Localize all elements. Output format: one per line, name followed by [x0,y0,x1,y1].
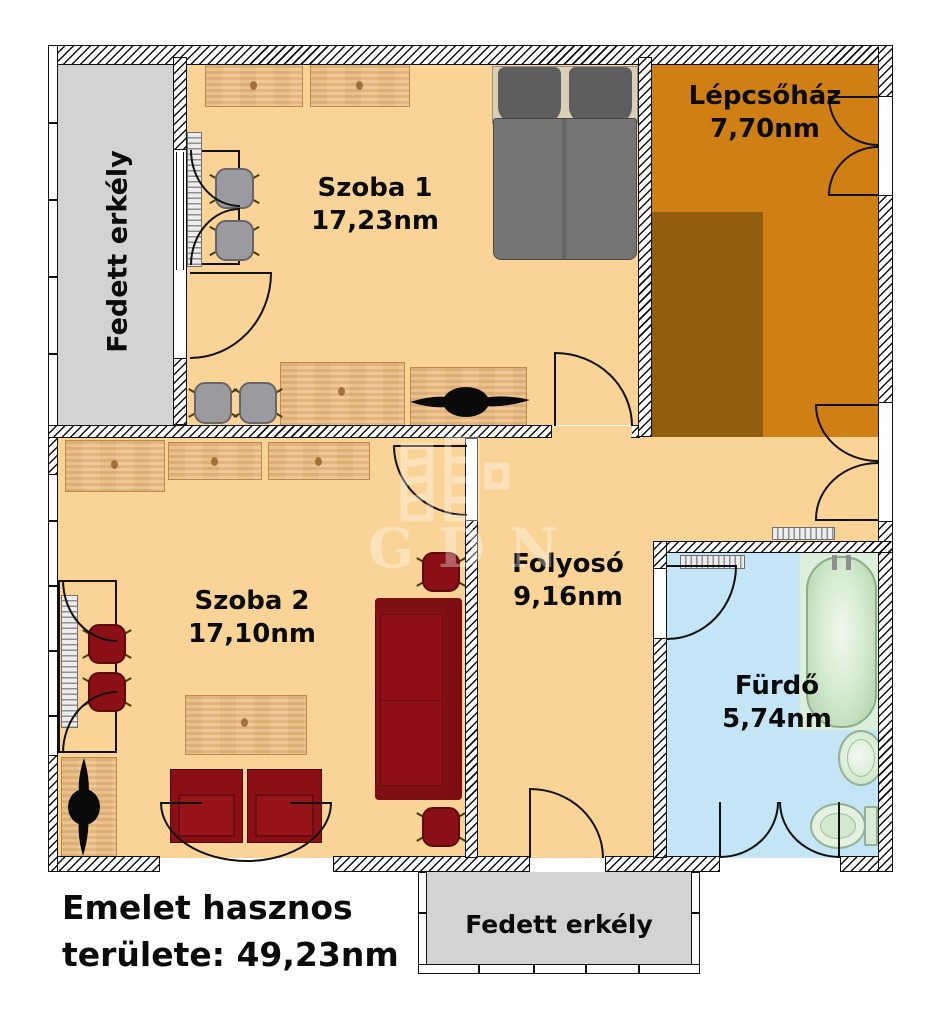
szoba1-chair-4 [237,380,279,426]
toilet-tank-symbol [864,806,878,846]
balcony-szoba1-window [176,152,184,270]
wall-left-lower-seg-2 [48,755,58,872]
balcony-rail-tick-4 [48,353,58,355]
balcony-bottom-label: Fedett erkély [427,908,691,941]
lepcsohaz-label: Lépcsőház 7,70nm [645,80,885,146]
szoba2-table [185,695,307,755]
szoba2-cabinet-3 [268,442,370,480]
corridor-radiator [772,527,835,540]
szoba1-corridor-door-leaf [554,352,556,426]
balcony-bottom-wall-bottom [418,964,700,974]
balcony-rail-tick-1 [48,122,58,124]
furdo-balcony-door-leaf-right [838,802,840,858]
wall-bottom-3 [605,856,720,872]
sofa-backrest [445,598,462,800]
balcony-bottom-wall-left [418,872,427,974]
balcony-bottom-tick-1 [478,964,480,974]
left-window-tick-4 [48,715,58,717]
szoba1-desk-chair-icon [408,381,532,421]
lepcsohaz-area: 7,70nm [645,113,885,146]
wall-balcony-szoba1-seg-1 [173,57,187,150]
szoba1-name: Szoba 1 [255,172,495,205]
balcony-bottom-tick-5 [418,912,427,914]
wall-left-balcony [48,45,58,430]
balcony-bottom-tick-4 [638,964,640,974]
sofa-arm-top [375,598,450,613]
furdo-name: Fürdő [657,670,897,703]
szoba2-area: 17,10nm [132,618,372,651]
watermark-text: GDN [368,516,582,580]
left-window-tick-3 [48,650,58,652]
stairwell-door-leaf-2 [828,194,878,196]
szoba2-balcony-door-leaf-right [290,802,332,804]
sofa-cushion-2 [380,700,443,786]
balcony-bottom-tick-3 [585,964,587,974]
balcony-bottom-tick-2 [533,964,535,974]
szoba1-balcony-door-leaf [190,272,272,274]
left-window-tick-2 [48,585,58,587]
szoba1-cabinet-2 [310,64,410,107]
corridor-right-door-leaf-1 [815,404,878,406]
staircase-steps [652,212,763,437]
szoba2-cabinet-2 [168,442,262,480]
furdo-area: 5,74nm [657,703,897,736]
furdo-balcony-door-leaf-left [719,802,721,858]
sofa-symbol [375,598,462,800]
bed-blanket [493,118,637,260]
szoba1-chair-3 [192,380,234,426]
left-window-tick-1 [48,520,58,522]
balcony-bottom-wall-right [691,872,700,974]
bed-pillow-right [569,67,632,123]
szoba2-cabinet-1 [65,440,165,492]
szoba2-name: Szoba 2 [132,585,372,618]
szoba2-chair-4 [420,805,462,849]
wall-balcony-szoba1-seg-2 [173,358,187,425]
szoba2-desk-chair-icon [64,756,102,858]
wall-furdo-top [653,541,893,553]
szoba1-door-threshold [552,426,632,437]
sofa-cushion-1 [380,614,443,701]
folyoso-area: 9,16nm [448,581,688,614]
floor-area-summary: Emelet hasznos területe: 49,23nm [62,884,399,978]
double-bed-symbol [492,65,638,260]
szoba1-cabinet-1 [205,64,303,107]
corridor-right-door-leaf-2 [815,519,878,521]
floor-plan: Fedett erkély Szoba 1 17,23nm Lépcsőház … [0,0,940,1024]
balcony-rail-tick-2 [48,199,58,201]
szoba1-area: 17,23nm [255,205,495,238]
corridor-balcony-door-leaf [529,788,531,858]
szoba2-balcony-door-leaf-left [160,802,202,804]
summary-line-1: Emelet hasznos [62,884,399,931]
lepcsohaz-name: Lépcsőház [645,80,885,113]
szoba2-label: Szoba 2 17,10nm [132,585,372,651]
szoba1-label: Szoba 1 17,23nm [255,172,495,238]
furdo-label: Fürdő 5,74nm [657,670,897,736]
wall-right-seg-2 [878,195,893,403]
summary-line-2: területe: 49,23nm [62,931,399,978]
szoba1-table-1 [280,362,405,426]
gdn-logo-icon [396,436,512,522]
wall-bottom-2 [333,856,530,872]
balcony-left-label: Fedett erkély [103,102,134,402]
balcony-bottom-tick-6 [691,912,700,914]
bed-pillow-left [498,67,561,123]
sofa-arm-bottom [375,785,450,800]
balcony-rail-tick-3 [48,276,58,278]
wall-bottom-1 [48,856,160,872]
